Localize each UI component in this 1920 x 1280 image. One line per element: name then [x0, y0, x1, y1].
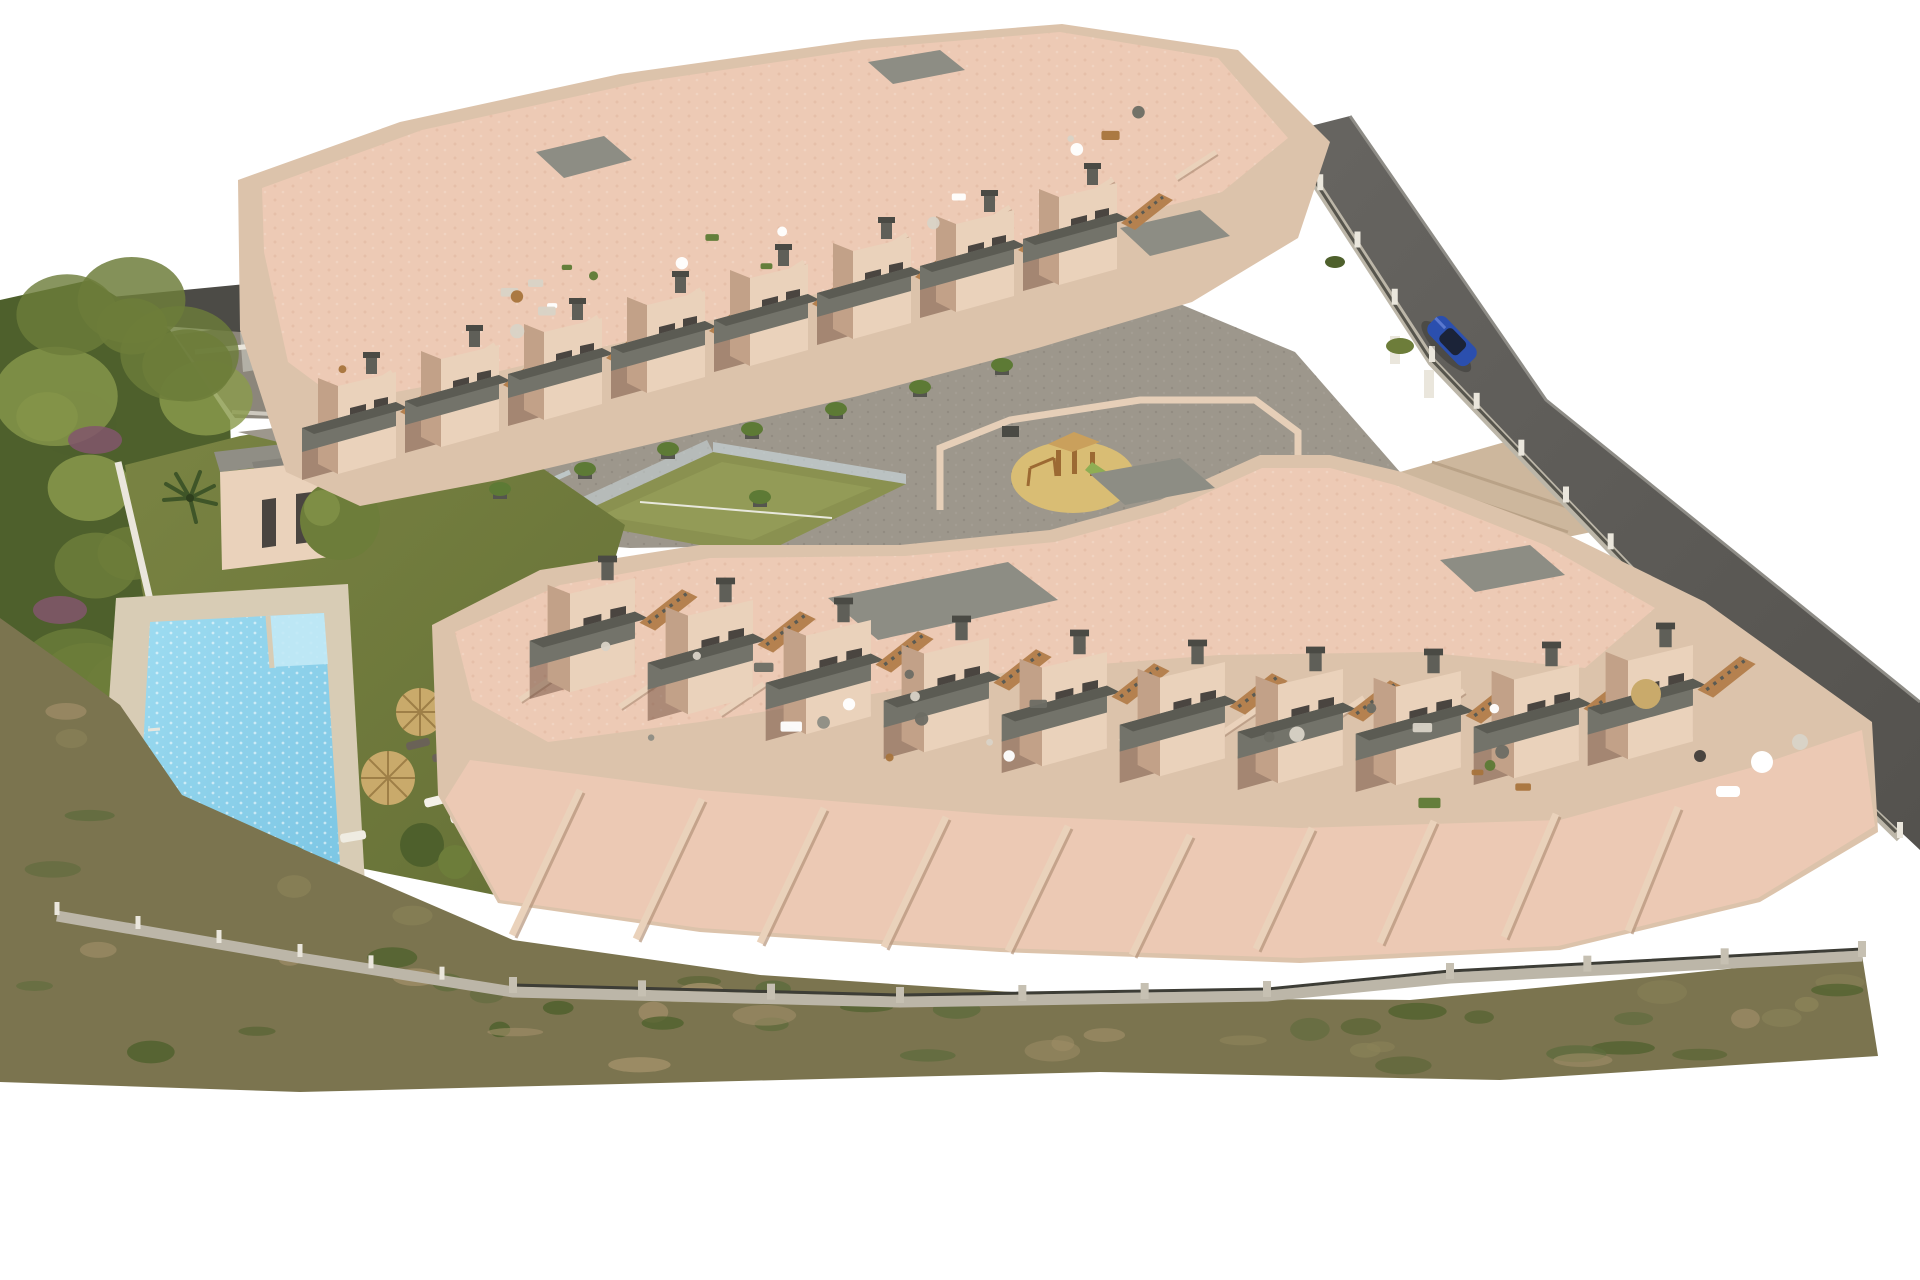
scrub-patch [1795, 997, 1819, 1012]
tree-blob [16, 274, 117, 355]
terrace-furniture [843, 698, 855, 710]
terrace-furniture [754, 663, 774, 672]
gate-planter [1386, 338, 1414, 354]
terrace-furniture [339, 365, 347, 373]
wall-pillar [509, 977, 517, 993]
flowering-shrub [33, 596, 87, 624]
scrub-patch [1614, 1012, 1653, 1025]
wall-pillar [638, 980, 646, 996]
planter-plant [825, 402, 847, 416]
scrub-patch [642, 1016, 684, 1029]
umbrella [1631, 679, 1661, 709]
pool-steps [266, 613, 328, 667]
terrace-furniture [705, 234, 718, 241]
terrace-furniture [511, 290, 523, 302]
terrace-furniture [601, 642, 610, 651]
terrace-furniture [761, 263, 773, 269]
terrace-furniture [528, 279, 543, 287]
scrub-patch [25, 861, 81, 878]
scrub-patch [487, 1028, 543, 1036]
scrub-patch [1553, 1053, 1612, 1067]
terrace-furniture [1030, 700, 1048, 708]
scrub-patch [65, 810, 115, 821]
fence-post [369, 955, 374, 968]
scrub-patch [1219, 1035, 1266, 1045]
scrub-patch [1672, 1049, 1727, 1061]
planter-plant [489, 482, 511, 496]
terrace-furniture [1070, 143, 1083, 156]
terrace-furniture [1366, 703, 1376, 713]
aerial-render [0, 0, 1920, 1280]
wall-pillar [1721, 948, 1729, 964]
scrub-patch [1084, 1028, 1126, 1042]
scrub-patch [56, 729, 88, 748]
terrace-furniture [781, 722, 802, 732]
scrub-patch [1731, 1009, 1760, 1029]
fence-post [1474, 393, 1480, 409]
terrace-furniture [562, 265, 572, 270]
fence-post [55, 902, 60, 915]
bush [438, 845, 472, 879]
roadside-bush [1325, 256, 1345, 268]
scrub-patch [238, 1027, 275, 1036]
scrub-patch [900, 1049, 956, 1061]
terrace-furniture [676, 257, 688, 269]
terrace-furniture [915, 712, 928, 725]
terrace-furniture [777, 227, 787, 237]
scrub-patch [127, 1041, 175, 1064]
wall-pillar [1263, 981, 1271, 997]
fence-post [1563, 487, 1569, 503]
wall-pillar [1446, 963, 1454, 979]
terrace-furniture [1495, 745, 1509, 759]
terrace-furniture [510, 324, 524, 338]
terrace-furniture [1132, 106, 1145, 119]
scrub-patch [1811, 984, 1863, 997]
fence-post [1897, 822, 1903, 838]
flowering-shrub [68, 426, 122, 454]
scrub-patch [392, 906, 432, 926]
wall-pillar [1858, 941, 1866, 957]
fence-post [298, 944, 303, 957]
planter-plant [909, 380, 931, 394]
planter-plant [657, 442, 679, 456]
terrace-furniture [648, 734, 654, 740]
planter-plant [741, 422, 763, 436]
terrace-furniture [952, 193, 966, 200]
terrace-furniture [1101, 131, 1119, 140]
scrub-patch [1388, 1003, 1446, 1020]
pool-house-door [262, 498, 276, 548]
fence-post [1518, 440, 1524, 456]
terrace-furniture [538, 307, 556, 316]
tree-blob [55, 533, 137, 599]
play-structure [1056, 450, 1061, 476]
scrub-patch [1366, 1041, 1394, 1052]
fence-post [217, 930, 222, 943]
render-canvas [0, 0, 1920, 1280]
scrub-patch [45, 703, 86, 720]
wall-pillar [767, 984, 775, 1000]
terrace-furniture [905, 670, 914, 679]
scrub-patch [1341, 1018, 1381, 1035]
terrace-furniture [817, 716, 830, 729]
playground-sign [1002, 426, 1019, 437]
scrub-patch [1375, 1056, 1431, 1074]
fence-post [136, 916, 141, 929]
planter-plant [991, 358, 1013, 372]
wall-pillar [1018, 985, 1026, 1001]
scrub-patch [1637, 980, 1687, 1004]
scrub-patch [1290, 1018, 1330, 1041]
terrace-furniture [1067, 135, 1074, 142]
scrub-patch [1025, 1040, 1081, 1062]
terrace-furniture [1003, 750, 1014, 761]
pool-ladder [148, 729, 160, 730]
scrub-patch [733, 1005, 797, 1026]
umbrella [361, 751, 415, 805]
fence-post [1608, 533, 1614, 549]
planter-plant [749, 490, 771, 504]
terrace-furniture [1490, 704, 1500, 714]
terrace-furniture [1418, 798, 1440, 808]
scrub-patch [1464, 1010, 1494, 1023]
fence-post [1355, 232, 1361, 248]
scrub-patch [277, 875, 311, 898]
terrace-furniture [1413, 723, 1432, 732]
terrace-furniture [693, 652, 701, 660]
terrace-furniture [1472, 770, 1484, 776]
scrub-patch [608, 1057, 670, 1072]
wall-pillar [896, 987, 904, 1003]
fence-post [440, 967, 445, 980]
scrub-patch [16, 981, 53, 991]
terrace-furniture [986, 739, 993, 746]
terrace-furniture [1264, 732, 1275, 743]
terrace-furniture [1485, 760, 1496, 771]
scrub-patch [1762, 1009, 1802, 1027]
terrace-furniture [886, 753, 894, 761]
terrace-furniture [910, 691, 920, 701]
fence-post [1392, 289, 1398, 305]
scrub-patch [80, 942, 117, 958]
bush [400, 823, 444, 867]
terrace-furniture [1515, 783, 1531, 790]
terrace-furniture [1289, 726, 1304, 741]
gate-pillar [1424, 370, 1434, 398]
terrace-furniture [927, 217, 940, 230]
terrace-furniture [589, 271, 598, 280]
planter-plant [574, 462, 596, 476]
scrub-patch [543, 1001, 574, 1015]
wall-pillar [1583, 956, 1591, 972]
wall-pillar [1141, 983, 1149, 999]
